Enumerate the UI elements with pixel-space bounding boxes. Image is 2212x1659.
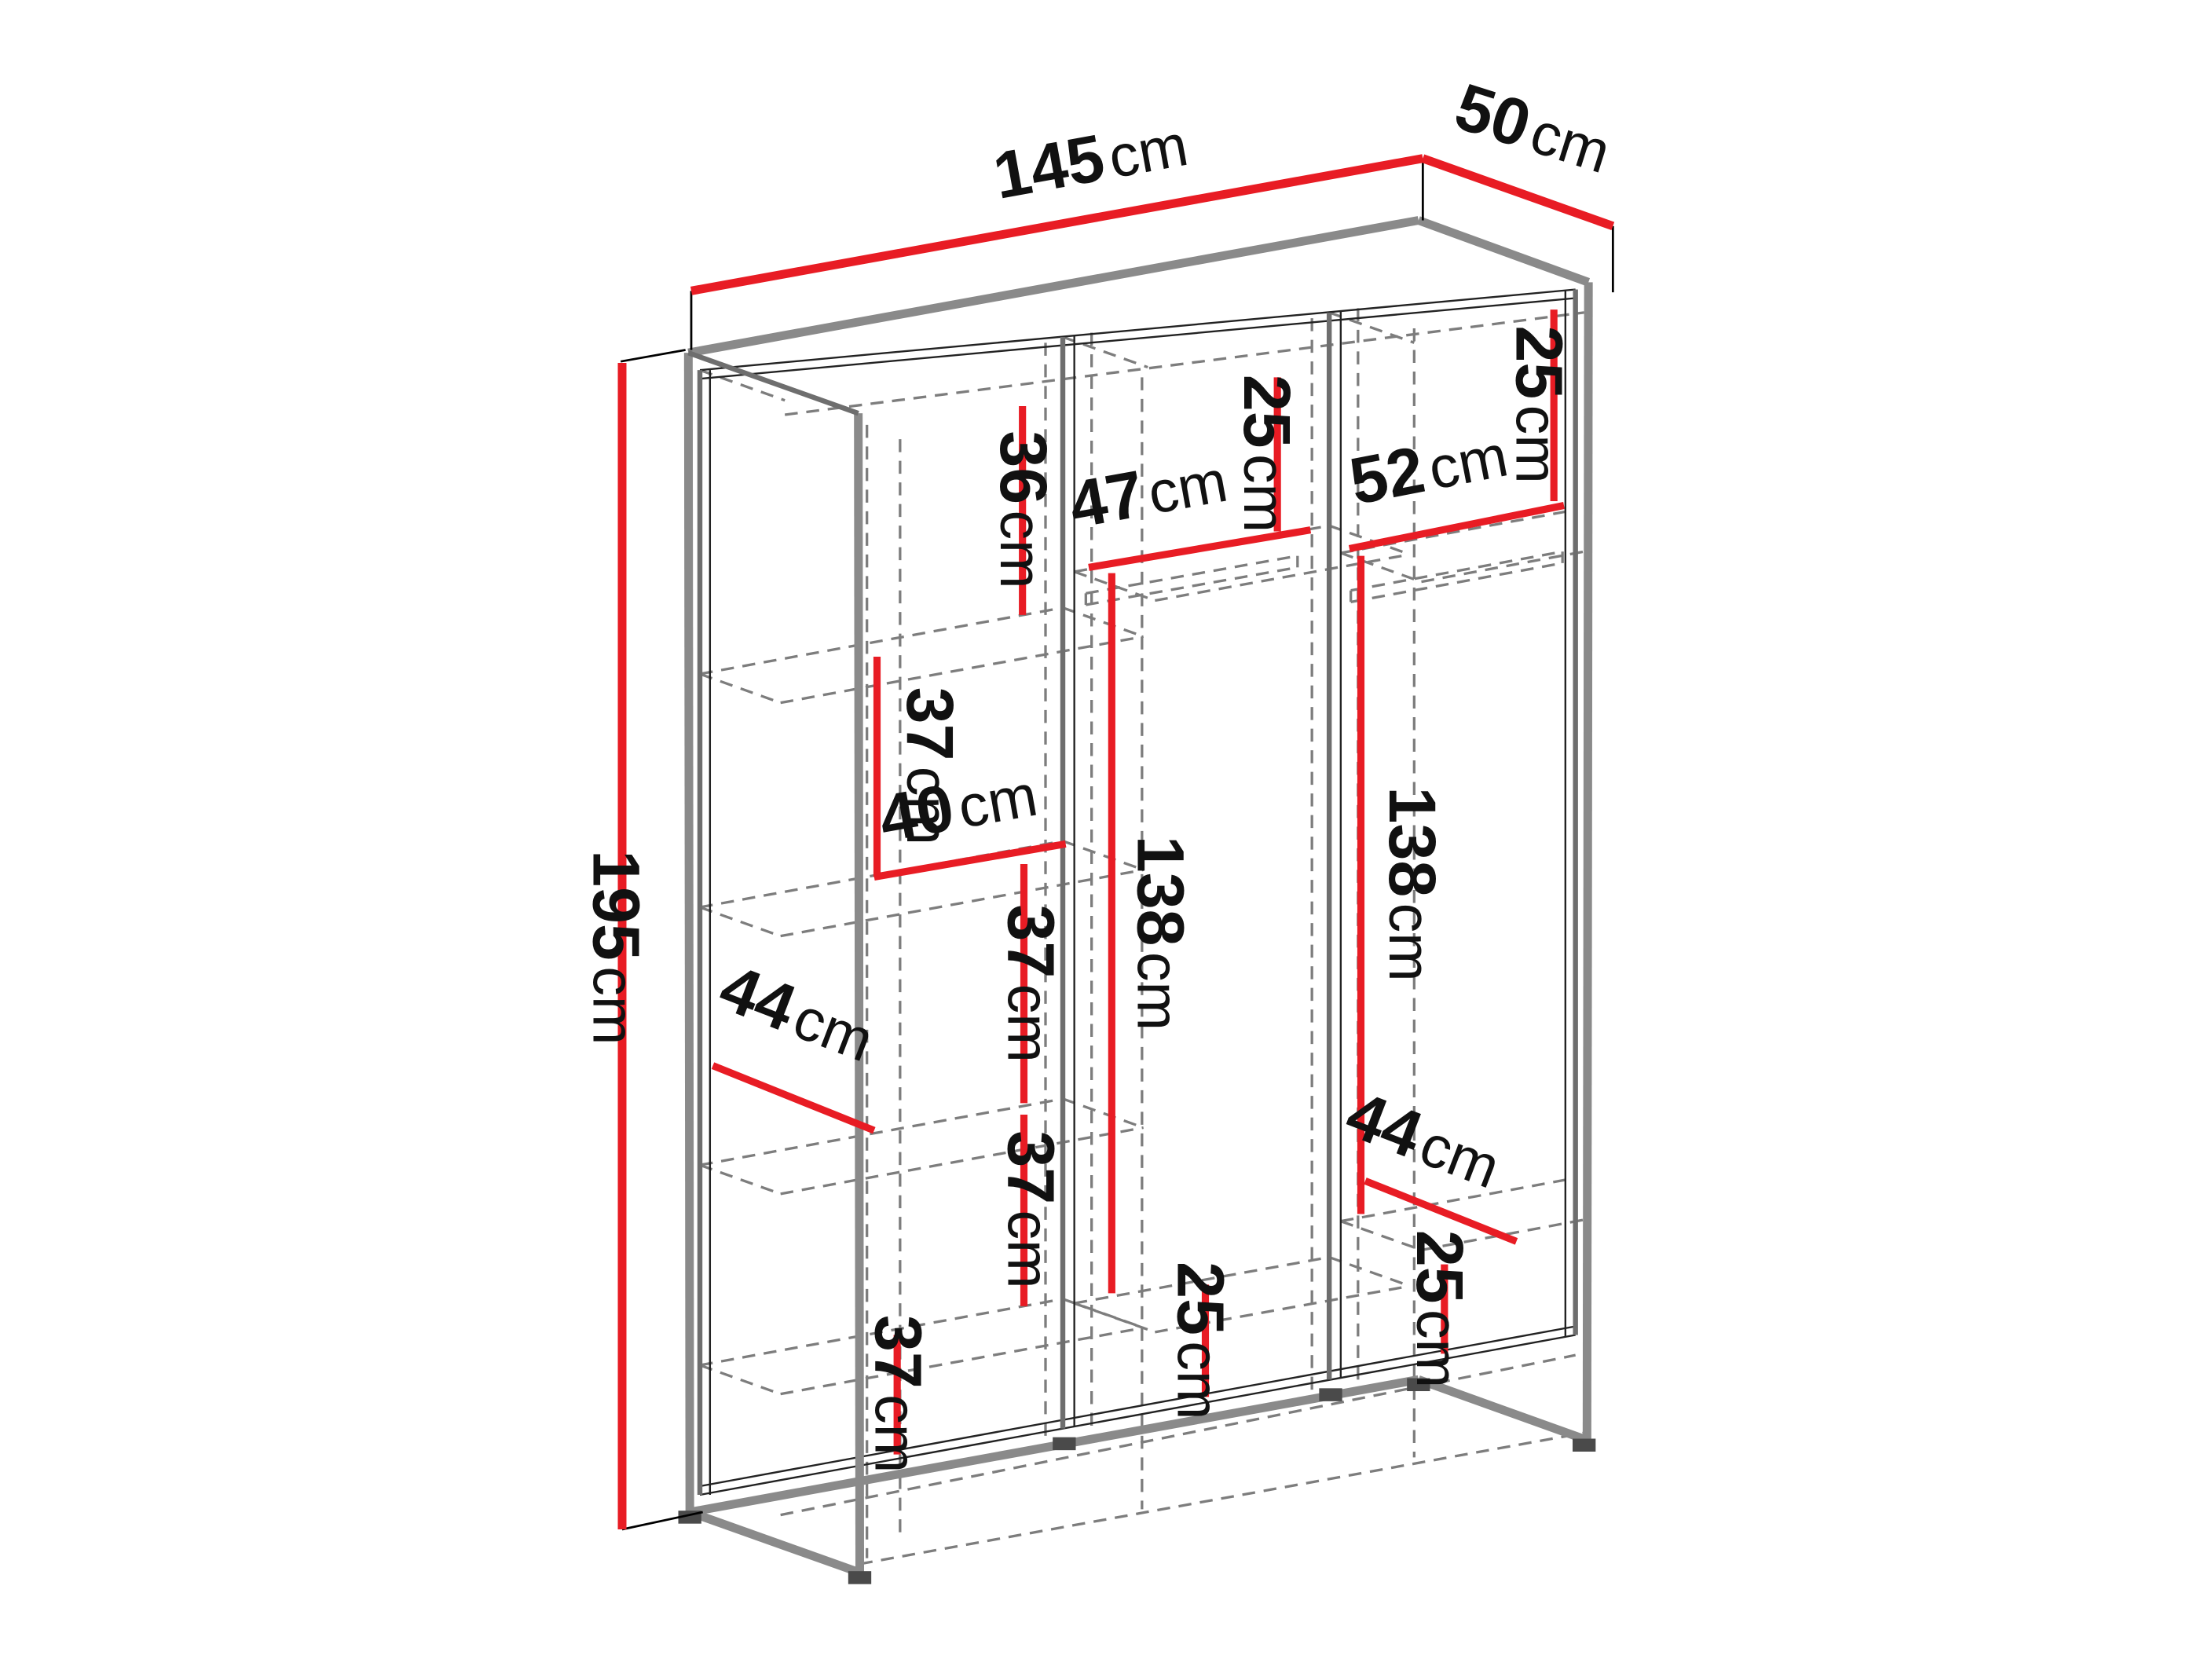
dim-col1-gap3-label: 37cm <box>994 905 1068 1063</box>
dim-col2-bottom-gap-label: 25cm <box>1164 1262 1238 1419</box>
dim-col1-shelf-depth-line <box>713 1066 874 1131</box>
dim-col3-bottom-gap-label: 25cm <box>1403 1230 1477 1388</box>
dim-col3-hanging-label: 138cm <box>1375 787 1449 982</box>
diagram-canvas: 145cm 50cm 195cm 36cm 37cm 40cm 37cm 44c… <box>0 0 2212 1659</box>
dim-col1-bottom-gap-label: 37cm <box>862 1315 936 1473</box>
dim-depth-label: 50cm <box>1447 69 1620 187</box>
dim-col2-shelf-width-label: 47cm <box>1064 441 1232 542</box>
dim-col2-top-gap-label: 25cm <box>1230 375 1304 533</box>
foot <box>1053 1437 1075 1451</box>
dim-col1-gap4-label: 37cm <box>994 1130 1068 1288</box>
dim-height-label: 195cm <box>579 850 653 1045</box>
foot <box>1573 1439 1595 1452</box>
foot <box>1319 1388 1342 1401</box>
dim-width-label: 145cm <box>988 105 1193 213</box>
dim-col3-shelf-width-label: 52cm <box>1344 416 1514 519</box>
dim-col2-hanging-label: 138cm <box>1123 836 1197 1031</box>
foot <box>848 1571 871 1584</box>
dim-col2-shelf-width-line <box>1089 530 1310 568</box>
wardrobe-dimension-diagram: 145cm 50cm 195cm 36cm 37cm 40cm 37cm 44c… <box>0 0 2212 1659</box>
dim-col1-top-gap-label: 36cm <box>987 430 1060 588</box>
dim-col3-top-gap-label: 25cm <box>1502 325 1576 483</box>
